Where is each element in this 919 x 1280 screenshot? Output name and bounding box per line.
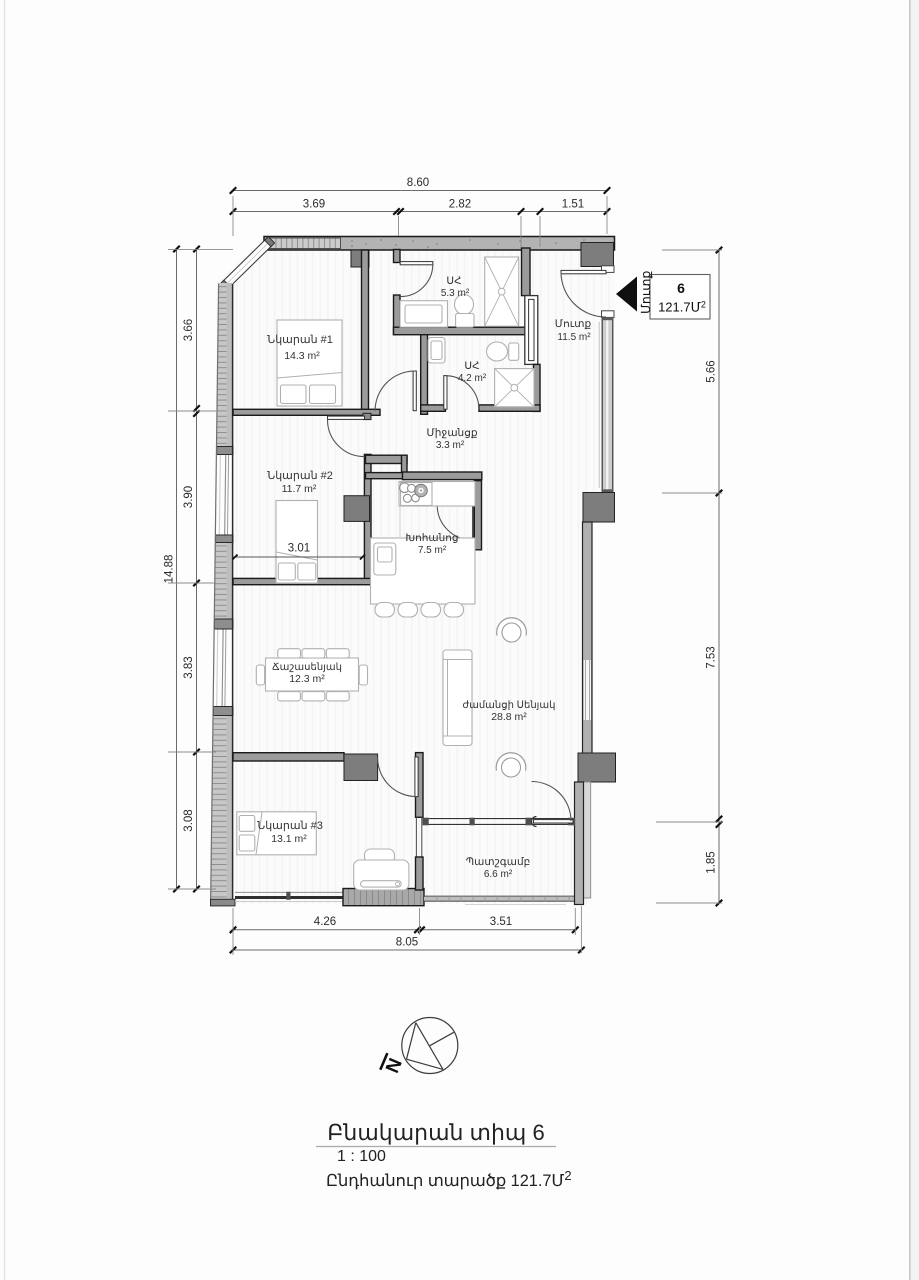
svg-text:14.88: 14.88 [164,555,176,584]
svg-text:1.51: 1.51 [562,199,584,211]
svg-text:121.7Մ2: 121.7Մ2 [658,300,706,315]
svg-text:Խոհանոց: Խոհանոց [405,532,458,544]
svg-text:Ճաշասենյակ: Ճաշասենյակ [272,662,342,673]
svg-text:4.26: 4.26 [314,916,336,928]
svg-text:3.08: 3.08 [183,809,195,831]
svg-text:12.3 m²: 12.3 m² [289,673,325,685]
svg-text:1 : 100: 1 : 100 [337,1148,386,1165]
svg-text:2.82: 2.82 [449,199,471,211]
svg-text:3.90: 3.90 [183,486,195,508]
svg-text:14.3 m²: 14.3 m² [284,350,320,362]
svg-text:Պատշգամբ: Պատշգամբ [466,856,531,868]
svg-text:3.66: 3.66 [183,319,195,341]
svg-text:Միջանցք: Միջանցք [426,427,477,439]
svg-text:ՍՀ: ՍՀ [464,360,480,372]
svg-text:13.1 m²: 13.1 m² [271,833,307,845]
svg-text:Ընդհանուր տարածք 121.7Մ2: Ընդհանուր տարածք 121.7Մ2 [326,1168,572,1190]
svg-text:3.83: 3.83 [183,656,195,678]
svg-text:5.3 m²: 5.3 m² [441,288,470,299]
svg-text:5.66: 5.66 [706,360,718,382]
svg-text:8.60: 8.60 [407,177,429,189]
svg-text:1.85: 1.85 [706,851,718,873]
svg-text:Բնակարան տիպ 6: Բնակարան տիպ 6 [327,1120,544,1145]
svg-text:7.53: 7.53 [706,646,718,668]
svg-text:Նկարան #2: Նկարան #2 [267,470,333,482]
svg-text:6: 6 [677,280,685,296]
svg-text:Մուտք: Մուտք [555,318,592,330]
svg-text:Նկարան #3: Նկարան #3 [257,820,323,832]
svg-text:ժամանցի Սենյակ: ժամանցի Սենյակ [463,700,556,711]
svg-text:11.7 m²: 11.7 m² [282,483,317,495]
svg-text:6.6 m²: 6.6 m² [484,869,513,880]
svg-text:Նկարան #1: Նկարան #1 [267,334,333,346]
svg-text:8.05: 8.05 [396,937,418,949]
svg-text:3.3 m²: 3.3 m² [436,440,465,451]
svg-text:3.01: 3.01 [288,543,310,555]
svg-text:4.2 m²: 4.2 m² [458,373,487,384]
svg-text:ՍՀ: ՍՀ [446,275,462,287]
svg-text:3.51: 3.51 [490,916,512,928]
svg-text:7.5 m²: 7.5 m² [418,545,447,556]
svg-text:3.69: 3.69 [303,199,325,211]
svg-text:Մուտք: Մուտք [639,271,653,314]
svg-text:11.5 m²: 11.5 m² [557,332,591,343]
svg-text:28.8 m²: 28.8 m² [491,711,527,723]
